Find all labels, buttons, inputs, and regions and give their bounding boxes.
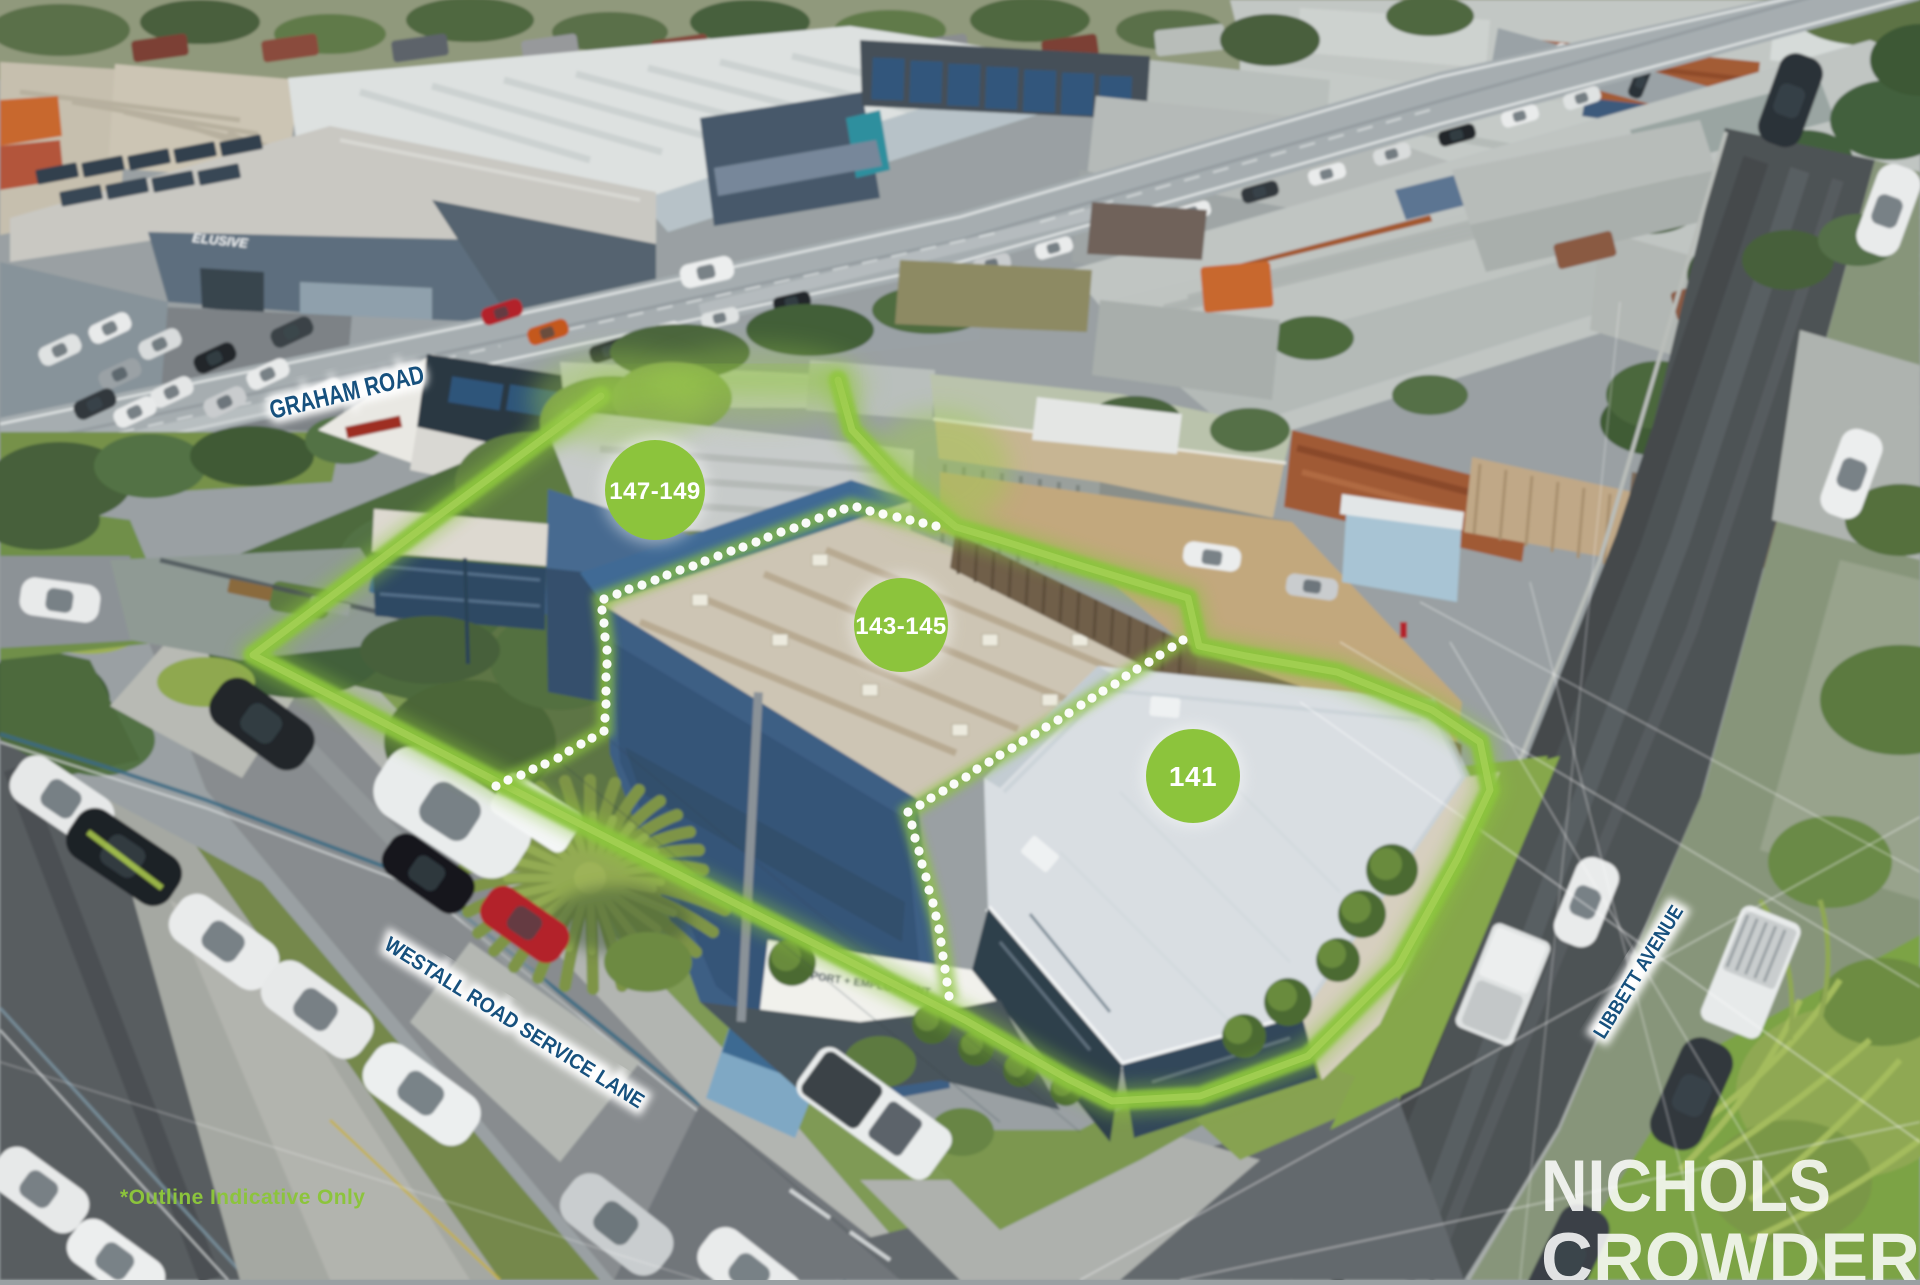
svg-text:147-149: 147-149 [609, 478, 701, 505]
svg-text:*Outline Indicative Only: *Outline Indicative Only [120, 1186, 365, 1209]
svg-text:NICHOLS: NICHOLS [1541, 1146, 1831, 1227]
svg-text:CROWDER: CROWDER [1541, 1219, 1920, 1280]
svg-text:143-145: 143-145 [855, 613, 947, 640]
svg-text:141: 141 [1169, 761, 1217, 792]
